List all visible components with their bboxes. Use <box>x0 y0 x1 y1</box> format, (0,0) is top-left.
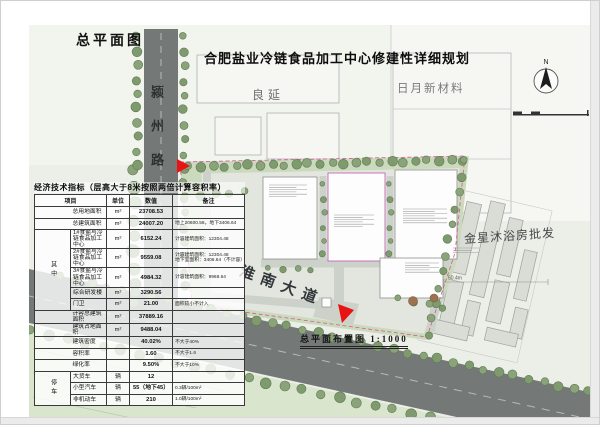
tree-icon <box>245 373 254 382</box>
row-value: 9559.08 <box>130 249 173 268</box>
tree-icon <box>456 188 464 196</box>
row-item: 1#食盐与冷链食品加工中心 <box>71 230 107 249</box>
row-value: 4984.32 <box>130 268 173 287</box>
tree-icon <box>292 159 302 169</box>
row-note <box>173 207 245 219</box>
table-row: 计容总建筑面积m²37889.16 <box>35 310 245 323</box>
row-item: 小型汽车 <box>71 383 107 395</box>
metrics-panel: 经济技术指标（层高大于8米按照两倍计算容积率） 项目 单位 数值 备注 总用地面… <box>34 182 245 406</box>
main-title: 合肥盐业冷链食品加工中心修建性详细规划 <box>204 48 470 67</box>
table-row: 建筑占地面积m²9488.04 <box>35 323 245 336</box>
tree-icon <box>243 159 253 169</box>
table-row: 停车大货车辆12 <box>35 371 245 383</box>
tree-icon <box>439 305 446 312</box>
tree-icon <box>525 375 533 383</box>
row-value: 3290.56 <box>130 287 173 299</box>
row-unit: m² <box>107 310 130 323</box>
tree-icon <box>387 226 392 231</box>
tree-icon <box>134 132 142 140</box>
row-note <box>173 371 245 383</box>
tree-icon <box>352 158 361 167</box>
row-item: 2#食盐与冷链食品加工中心 <box>71 249 107 268</box>
plan-sheet: 50.4m N 总平面图 合肥盐业冷链食品加工中心修建性详细规划 颍州路 淮南大… <box>0 0 600 425</box>
row-item: 综合研发楼 <box>71 287 107 299</box>
tree-icon <box>395 295 401 301</box>
building-2 <box>328 173 385 261</box>
tree-icon <box>427 314 435 322</box>
row-value: 21.00 <box>130 299 173 311</box>
tree-icon <box>280 266 287 273</box>
tree-icon <box>449 221 456 228</box>
tree-icon <box>133 148 141 156</box>
tree-icon <box>280 162 288 170</box>
metrics-title: 经济技术指标（层高大于8米按照两倍计算容积率） <box>34 182 245 193</box>
tree-icon <box>432 353 442 363</box>
tree-icon <box>460 156 467 163</box>
tree-icon <box>403 350 411 358</box>
row-item: 大货车 <box>71 371 107 383</box>
tree-icon <box>479 366 487 374</box>
row-item: 计容总建筑面积 <box>71 310 107 323</box>
tree-icon <box>362 157 370 165</box>
building-research <box>380 258 443 298</box>
tree-icon <box>541 378 549 386</box>
tree-icon <box>409 297 418 306</box>
tree-icon <box>351 398 361 408</box>
row-value: 37889.16 <box>130 310 173 323</box>
header-note: 备注 <box>173 195 245 207</box>
row-note: 0.3辆/100m² <box>173 383 245 395</box>
tree-icon <box>398 158 407 167</box>
tree-icon <box>234 162 242 170</box>
row-note: 不大于1.6 <box>173 348 245 360</box>
row-unit: 辆 <box>107 394 130 406</box>
tree-icon <box>302 158 311 167</box>
row-value: 24007.20 <box>130 218 173 230</box>
row-value: 12 <box>130 371 173 383</box>
tree-icon <box>322 239 327 244</box>
tree-icon <box>320 181 325 186</box>
building-3 <box>395 170 457 259</box>
row-unit: m² <box>107 218 130 230</box>
row-unit: m² <box>107 207 130 219</box>
tree-icon <box>570 384 579 393</box>
row-item: 门卫 <box>71 299 107 311</box>
row-unit: 辆 <box>107 371 130 383</box>
tree-icon <box>553 382 563 392</box>
row-unit: m² <box>107 249 130 268</box>
row-note <box>173 310 245 323</box>
row-item: 总建筑面积 <box>71 218 107 230</box>
tree-icon <box>316 390 325 399</box>
tree-icon <box>210 161 219 170</box>
tree-icon <box>338 159 348 169</box>
table-row: 绿化率9.50%不大于10% <box>35 360 245 372</box>
tree-icon <box>252 316 262 326</box>
north-label: N <box>543 59 548 66</box>
tree-icon <box>457 173 466 182</box>
tree-icon <box>440 267 447 274</box>
row-group-cell <box>35 323 71 336</box>
tree-icon <box>256 161 265 170</box>
tree-icon <box>268 319 277 328</box>
row-item: 非机动车 <box>71 394 107 406</box>
tree-icon <box>329 159 337 167</box>
row-group-cell <box>35 218 71 230</box>
tree-icon <box>282 321 290 329</box>
row-item: 3#食盐与冷链食品加工中心 <box>71 268 107 287</box>
row-group-cell <box>35 348 71 360</box>
tree-icon <box>386 251 392 257</box>
header-item: 项目 <box>35 195 107 207</box>
tree-icon <box>295 265 301 271</box>
row-value: 1.60 <box>130 348 173 360</box>
road-label-yingzhou: 颍州路 <box>147 85 166 187</box>
row-value: 6152.24 <box>130 230 173 249</box>
tree-icon <box>420 352 428 360</box>
header-unit: 单位 <box>107 195 130 207</box>
row-note: 1.0辆/100m² <box>173 394 245 406</box>
tree-icon <box>260 378 271 389</box>
tree-icon <box>494 367 504 377</box>
tree-icon <box>269 160 277 168</box>
row-note <box>173 323 245 336</box>
tree-icon <box>435 285 442 292</box>
row-note: 不大于40% <box>173 337 245 349</box>
neighbor-label-liangyan: 良延 <box>252 86 284 103</box>
tree-icon <box>371 401 380 410</box>
header-value: 数值 <box>130 195 173 207</box>
tree-icon <box>180 79 187 86</box>
neighbor-label-riyue: 日月新材料 <box>397 80 465 96</box>
table-row: 总建筑面积m²24007.20地上20600.56，地下3406.64 <box>35 218 245 230</box>
tree-icon <box>322 210 328 216</box>
table-row: 总用地面积m²23708.53 <box>35 207 245 219</box>
row-group-cell <box>35 360 71 372</box>
row-item: 总用地面积 <box>71 207 107 219</box>
row-item: 建筑密度 <box>71 337 107 349</box>
row-group-cell: 停车 <box>35 371 71 406</box>
tree-icon <box>422 156 430 164</box>
tree-icon <box>388 404 397 413</box>
tree-icon <box>196 162 206 172</box>
page-edge <box>1 417 599 424</box>
tree-icon <box>181 62 189 70</box>
row-note: 地上20600.56，地下3406.64 <box>173 218 245 230</box>
tree-icon <box>448 155 457 164</box>
tree-icon <box>388 239 393 244</box>
drawing-caption: 总平面布置图 1:1000 <box>300 332 408 347</box>
tree-icon <box>430 294 438 302</box>
row-value: 9488.04 <box>130 323 173 336</box>
tree-icon <box>434 156 444 166</box>
tree-icon <box>320 226 325 231</box>
tree-icon <box>181 92 188 99</box>
tree-icon <box>131 102 141 112</box>
tree-icon <box>387 197 393 203</box>
tree-icon <box>182 135 189 142</box>
table-row: 容积率1.60不大于1.6 <box>35 348 245 360</box>
tree-icon <box>133 160 143 170</box>
tree-icon <box>180 152 187 159</box>
tree-icon <box>465 361 473 369</box>
tree-icon <box>388 156 398 166</box>
tree-icon <box>220 163 228 171</box>
row-item: 绿化率 <box>71 360 107 372</box>
tree-icon <box>441 253 449 261</box>
metrics-table: 项目 单位 数值 备注 总用地面积m²23708.53总建筑面积m²24007.… <box>34 194 245 406</box>
row-note: 计容建筑面积：12304.48地下室面积：3406.64（不计容） <box>173 249 245 268</box>
tree-icon <box>133 118 142 127</box>
row-unit <box>107 360 130 372</box>
tree-icon <box>180 48 189 57</box>
row-unit: m² <box>107 323 130 336</box>
page-edge <box>590 1 599 424</box>
tree-icon <box>388 210 394 216</box>
tree-icon <box>425 332 432 339</box>
tree-icon <box>179 32 186 39</box>
tree-icon <box>320 197 326 203</box>
row-value: 23708.53 <box>130 207 173 219</box>
row-group-cell: 其中 <box>35 230 71 311</box>
row-value: 55（地下45） <box>130 383 173 395</box>
page-title: 总平面图 <box>76 30 144 50</box>
row-unit <box>107 348 130 360</box>
table-row: 其中1#食盐与冷链食品加工中心m²6152.24计容建筑面积：12304.48 <box>35 230 245 249</box>
row-group-cell <box>35 310 71 323</box>
tree-icon <box>308 267 314 273</box>
tree-icon <box>180 122 188 130</box>
row-unit: m² <box>107 287 130 299</box>
tree-icon <box>178 105 187 114</box>
row-group-cell <box>35 207 71 219</box>
tree-icon <box>451 206 458 213</box>
tree-icon <box>319 251 325 257</box>
tree-icon <box>508 370 517 379</box>
tree-icon <box>26 326 35 335</box>
tree-icon <box>134 90 142 98</box>
tree-icon <box>443 235 452 244</box>
row-note: 计容建筑面积：12304.48 <box>173 230 245 249</box>
row-note <box>173 287 245 299</box>
row-group-cell <box>35 337 71 349</box>
row-unit: m² <box>107 230 130 249</box>
row-unit: m² <box>107 299 130 311</box>
row-item: 建筑占地面积 <box>71 323 107 336</box>
tree-icon <box>132 77 140 85</box>
row-note: 面积较小不计入 <box>173 299 245 311</box>
table-row: 建筑密度40.02%不大于40% <box>35 337 245 349</box>
tree-icon <box>316 160 324 168</box>
tree-icon <box>376 159 384 167</box>
row-unit <box>107 337 130 349</box>
row-unit: 辆 <box>107 383 130 395</box>
row-note: 计容建筑面积：9968.64 <box>173 268 245 287</box>
tree-icon <box>134 60 143 69</box>
row-item: 容积率 <box>71 348 107 360</box>
row-unit: m² <box>107 268 130 287</box>
tree-icon <box>412 157 420 165</box>
tree-icon <box>335 392 346 403</box>
dimension-label: 50.4m <box>448 276 462 282</box>
tree-icon <box>280 381 290 391</box>
tree-icon <box>449 359 458 368</box>
row-value: 210 <box>130 394 173 406</box>
building-1 <box>263 177 317 259</box>
row-value: 40.02% <box>130 337 173 349</box>
tree-icon <box>297 384 306 393</box>
row-note: 不大于10% <box>173 360 245 372</box>
tree-icon <box>386 181 391 186</box>
table-header-row: 项目 单位 数值 备注 <box>35 195 245 207</box>
row-value: 9.50% <box>130 360 173 372</box>
